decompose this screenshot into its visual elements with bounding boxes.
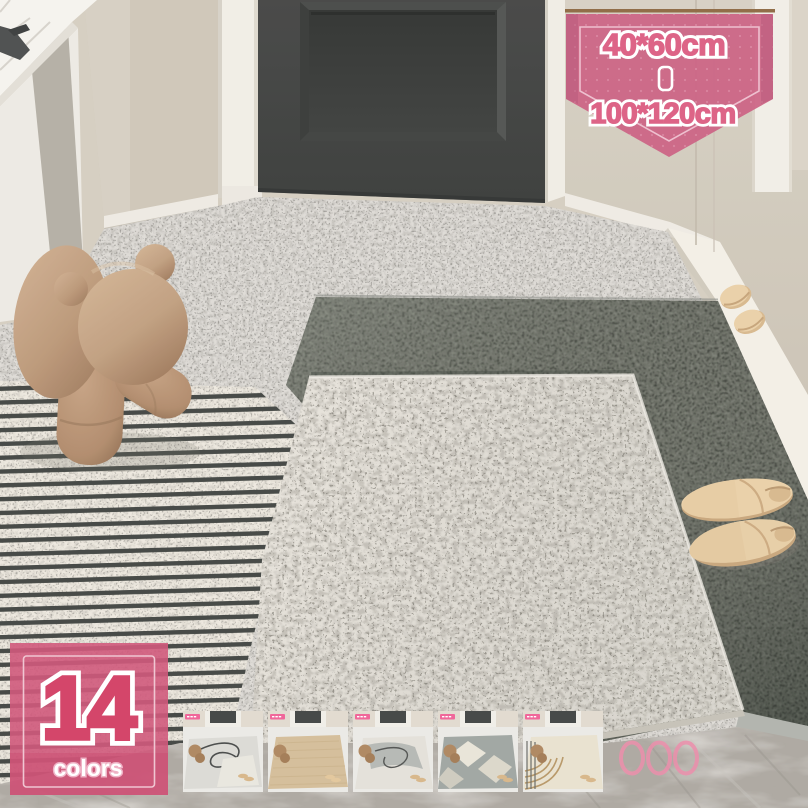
svg-text:100*120cm: 100*120cm bbox=[590, 98, 735, 130]
svg-text:14: 14 bbox=[41, 659, 137, 759]
svg-text:40*60cm: 40*60cm bbox=[603, 27, 725, 62]
svg-text:colors: colors bbox=[53, 755, 122, 781]
